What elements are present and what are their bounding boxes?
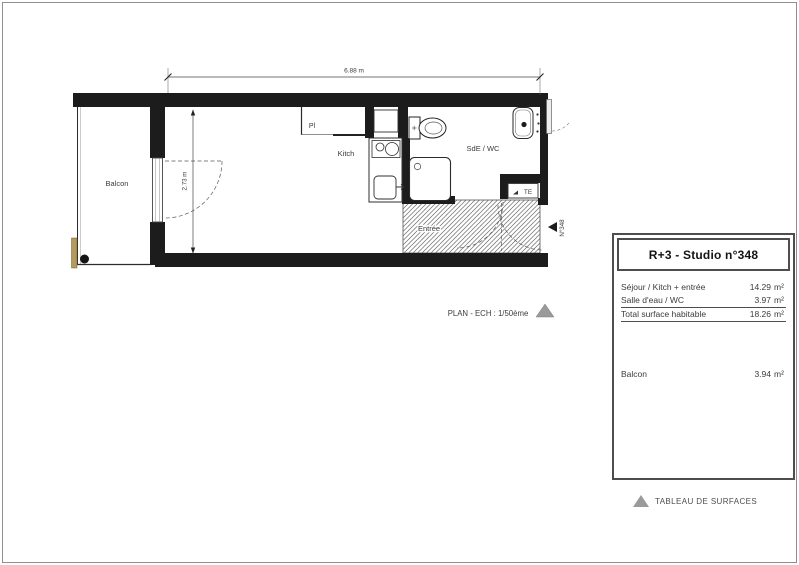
te-label: TE [524, 189, 533, 196]
wall-balcony-upper [150, 105, 165, 158]
row-label: Balcon [621, 368, 647, 381]
shower [410, 158, 451, 201]
surface-table: R+3 - Studio n°348 Séjour / Kitch + entr… [612, 233, 795, 480]
bathroom-label: SdE / WC [467, 144, 501, 153]
balcony-drain-dot [80, 255, 89, 264]
toilet [409, 117, 446, 139]
table-row-sejour: Séjour / Kitch + entrée 14.29 m² [621, 281, 786, 294]
depth-dimension-label: 2.73 m [182, 172, 189, 191]
duct-box [374, 110, 398, 132]
dimension-depth: 2.73 m [182, 110, 196, 254]
row-label: Salle d'eau / WC [621, 294, 684, 307]
table-row-salle-eau: Salle d'eau / WC 3.97 m² [621, 294, 786, 308]
window-swing-arc [165, 161, 222, 218]
unit-door-marker: N°348 [548, 219, 566, 237]
burner-large [386, 143, 399, 156]
balcony-label: Balcon [106, 179, 129, 188]
caption-label: TABLEAU DE SURFACES [655, 497, 757, 506]
wall-bottom [155, 253, 548, 267]
wall-bathroom-left [402, 138, 410, 202]
wall-duct-left [365, 107, 374, 138]
width-dimension-label: 6.88 m [344, 68, 364, 75]
burner-small [376, 143, 384, 151]
wall-top [73, 93, 548, 107]
row-value: 3.94 m² [746, 368, 786, 381]
wall-duct-right [398, 107, 408, 138]
landing-door [547, 100, 571, 134]
row-value: 18.26 m² [746, 308, 786, 321]
closet [301, 107, 367, 135]
washbasin [513, 108, 540, 139]
scale-note: PLAN - ECH : 1/50ème [448, 304, 554, 318]
row-label: Séjour / Kitch + entrée [621, 281, 705, 294]
entry-triangle-icon [548, 222, 557, 232]
balcony-divider-panel [72, 238, 78, 268]
caption-triangle-icon [633, 495, 649, 507]
unit-number-label: N°348 [559, 219, 566, 237]
kitchen-sink [374, 176, 396, 199]
row-label: Total surface habitable [621, 308, 706, 321]
table-title: R+3 - Studio n°348 [617, 238, 790, 271]
kitchen-counter [369, 138, 404, 202]
wall-te-corner [538, 198, 545, 205]
dimension-width: 6.88 m [165, 68, 544, 96]
te-box: TE [508, 184, 538, 199]
table-row-total: Total surface habitable 18.26 m² [621, 308, 786, 322]
table-row-balcon: Balcon 3.94 m² [621, 368, 786, 381]
row-value: 14.29 m² [746, 281, 786, 294]
kitchen-label: Kitch [338, 149, 355, 158]
row-value: 3.97 m² [746, 294, 786, 307]
table-caption: TABLEAU DE SURFACES [633, 495, 757, 507]
wall-te-top [500, 174, 540, 183]
scale-triangle-icon [536, 304, 554, 317]
basin-faucet-dot [521, 122, 526, 127]
table-rows: Séjour / Kitch + entrée 14.29 m² Salle d… [614, 274, 793, 381]
closet-label: Pl [309, 123, 316, 130]
wall-te-left [500, 183, 508, 199]
scale-note-label: PLAN - ECH : 1/50ème [448, 309, 529, 318]
entrance-label: Entrée [418, 224, 440, 233]
